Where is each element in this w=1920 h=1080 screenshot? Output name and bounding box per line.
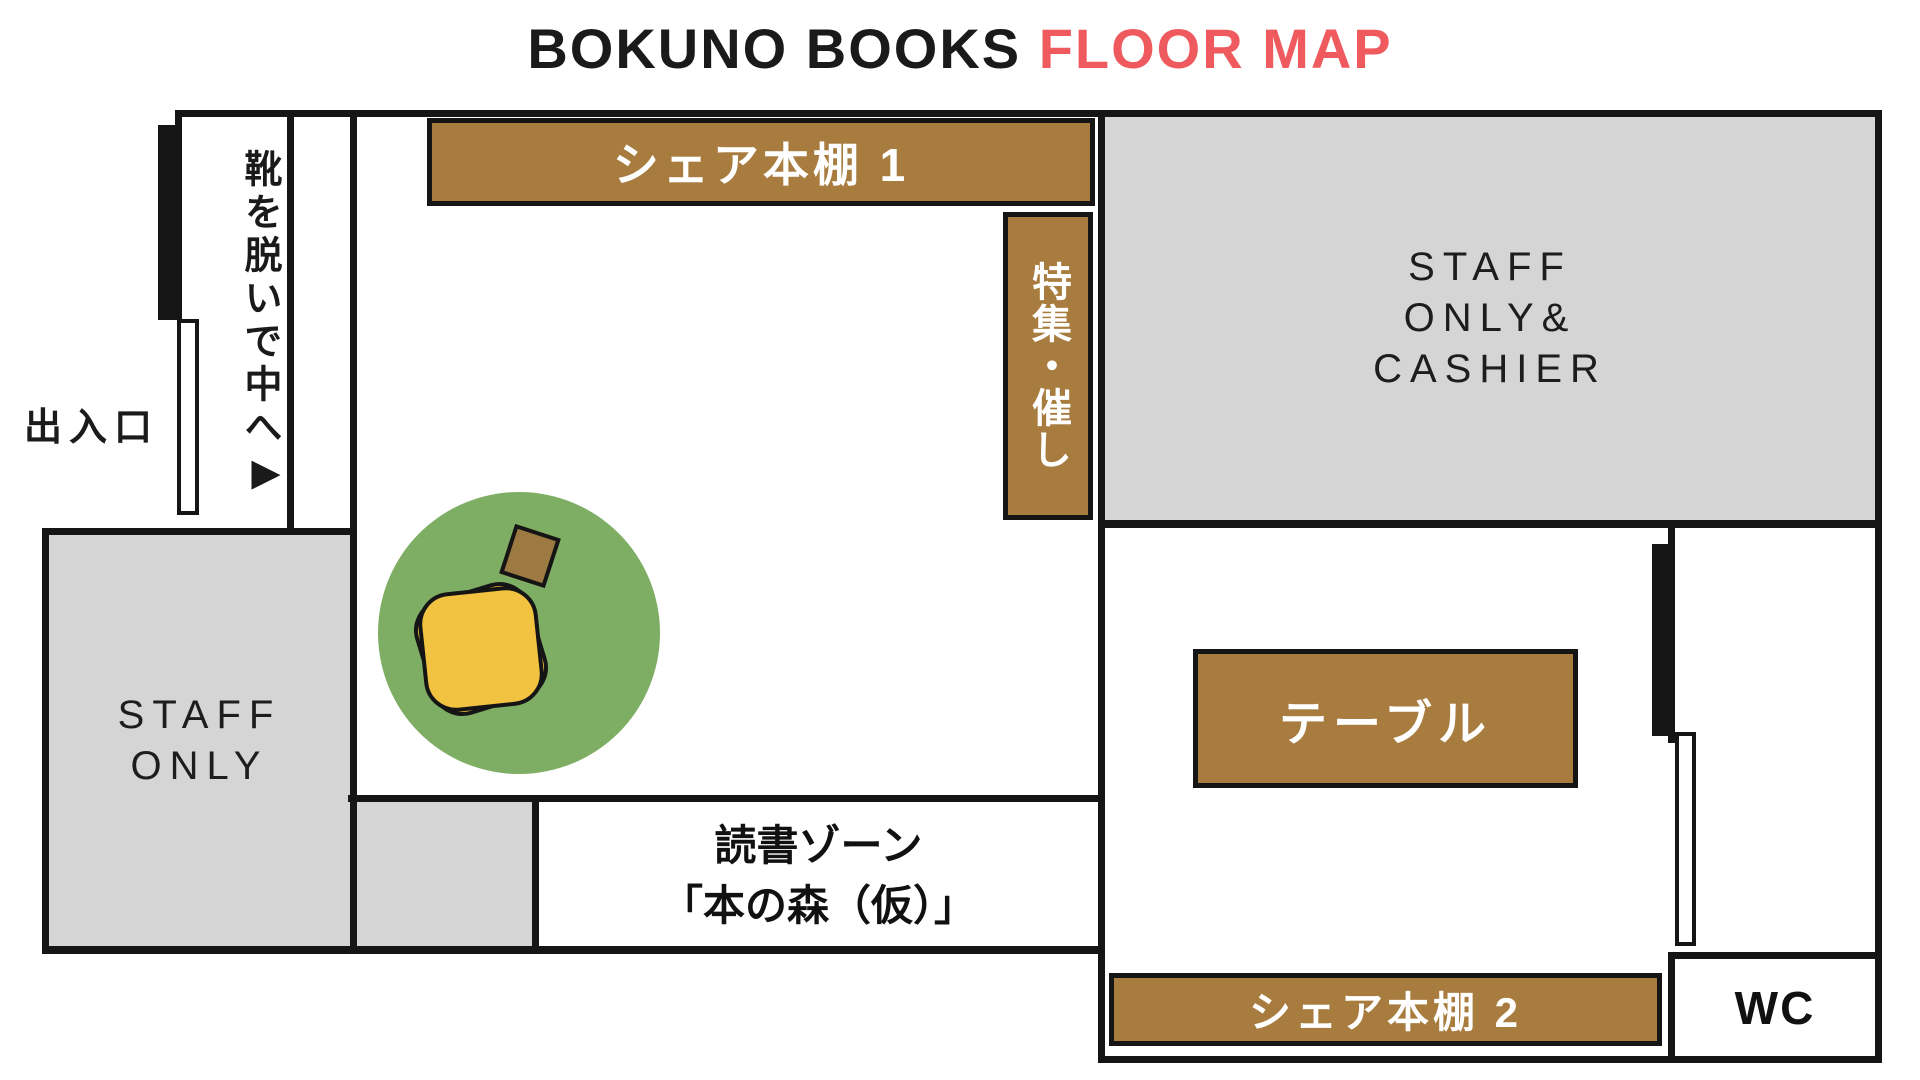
back-door-bar xyxy=(1652,544,1670,736)
page-title: BOKUNO BOOKS FLOOR MAP xyxy=(0,16,1920,81)
cashier-line-3: CASHIER xyxy=(1373,344,1607,395)
wall-reading-gray-right xyxy=(532,795,539,954)
wall-staff-left xyxy=(42,528,49,954)
staff-line-1: STAFF xyxy=(118,690,282,741)
feature-event-label: 特集・催し xyxy=(1019,261,1077,471)
reading-zone-line-1: 読書ゾーン xyxy=(661,816,976,876)
share-shelf-2-banner: シェア本棚 2 xyxy=(1109,973,1662,1046)
cashier-area-label: STAFF ONLY& CASHIER xyxy=(1105,117,1875,520)
wall-wc-left xyxy=(1668,952,1675,1063)
title-store-name: BOKUNO BOOKS xyxy=(527,17,1038,80)
reading-zone-gray-area xyxy=(357,802,532,946)
wall-cashier-bottom xyxy=(1098,520,1882,528)
reading-zone-line-2: 「本の森（仮）」 xyxy=(661,876,976,936)
wall-bottom-right xyxy=(1098,1056,1882,1063)
shoes-note-text: 靴を脱いで中へ xyxy=(182,149,287,450)
feature-event-banner: 特集・催し xyxy=(1003,212,1093,520)
title-floor-map: FLOOR MAP xyxy=(1039,17,1393,80)
wc-label: WC xyxy=(1675,959,1875,1056)
floor-map-page: BOKUNO BOOKS FLOOR MAP シェア本棚 1 特集・催し テーブ… xyxy=(0,0,1920,1080)
share-shelf-2-label: シェア本棚 2 xyxy=(1249,979,1522,1040)
entrance-label: 出入口 xyxy=(24,396,159,451)
wall-corridor-right xyxy=(287,110,294,535)
reading-zone-label: 読書ゾーン 「本の森（仮）」 xyxy=(539,802,1098,950)
cashier-line-2: ONLY& xyxy=(1373,293,1607,344)
wall-wc-top xyxy=(1668,952,1882,959)
back-door-leaf xyxy=(1675,732,1696,946)
table-label: テーブル xyxy=(1279,684,1492,754)
wall-right-section-left xyxy=(1098,110,1105,1063)
shoes-note: 靴を脱いで中へ▶ xyxy=(182,124,287,524)
table-banner: テーブル xyxy=(1193,649,1578,788)
wall-reading-top xyxy=(348,795,1105,802)
staff-only-label: STAFF ONLY xyxy=(49,535,350,946)
staff-line-2: ONLY xyxy=(118,741,282,792)
wall-mid-vertical xyxy=(350,110,357,954)
share-shelf-1-label: シェア本棚 1 xyxy=(613,129,909,195)
low-table xyxy=(415,583,547,715)
wall-right xyxy=(1875,110,1882,1063)
share-shelf-1-banner: シェア本棚 1 xyxy=(427,118,1095,206)
entrance-door-bar xyxy=(158,125,180,320)
arrow-right-icon: ▶ xyxy=(182,450,287,499)
wall-top xyxy=(175,110,1882,117)
cashier-line-1: STAFF xyxy=(1373,242,1607,293)
wall-staff-top xyxy=(42,528,357,535)
